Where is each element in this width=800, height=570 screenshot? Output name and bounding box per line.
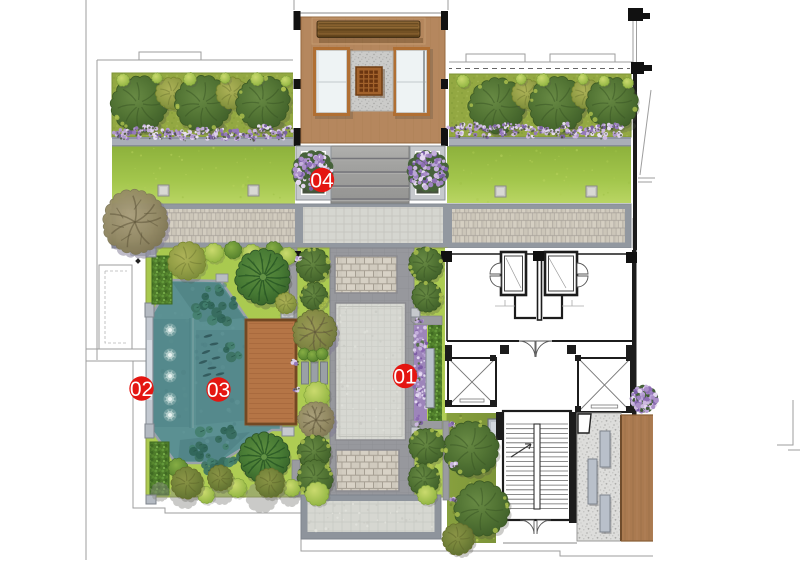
svg-text:04: 04 — [310, 169, 334, 192]
svg-text:01: 01 — [393, 365, 416, 388]
svg-text:02: 02 — [130, 378, 153, 401]
svg-text:03: 03 — [207, 379, 230, 402]
